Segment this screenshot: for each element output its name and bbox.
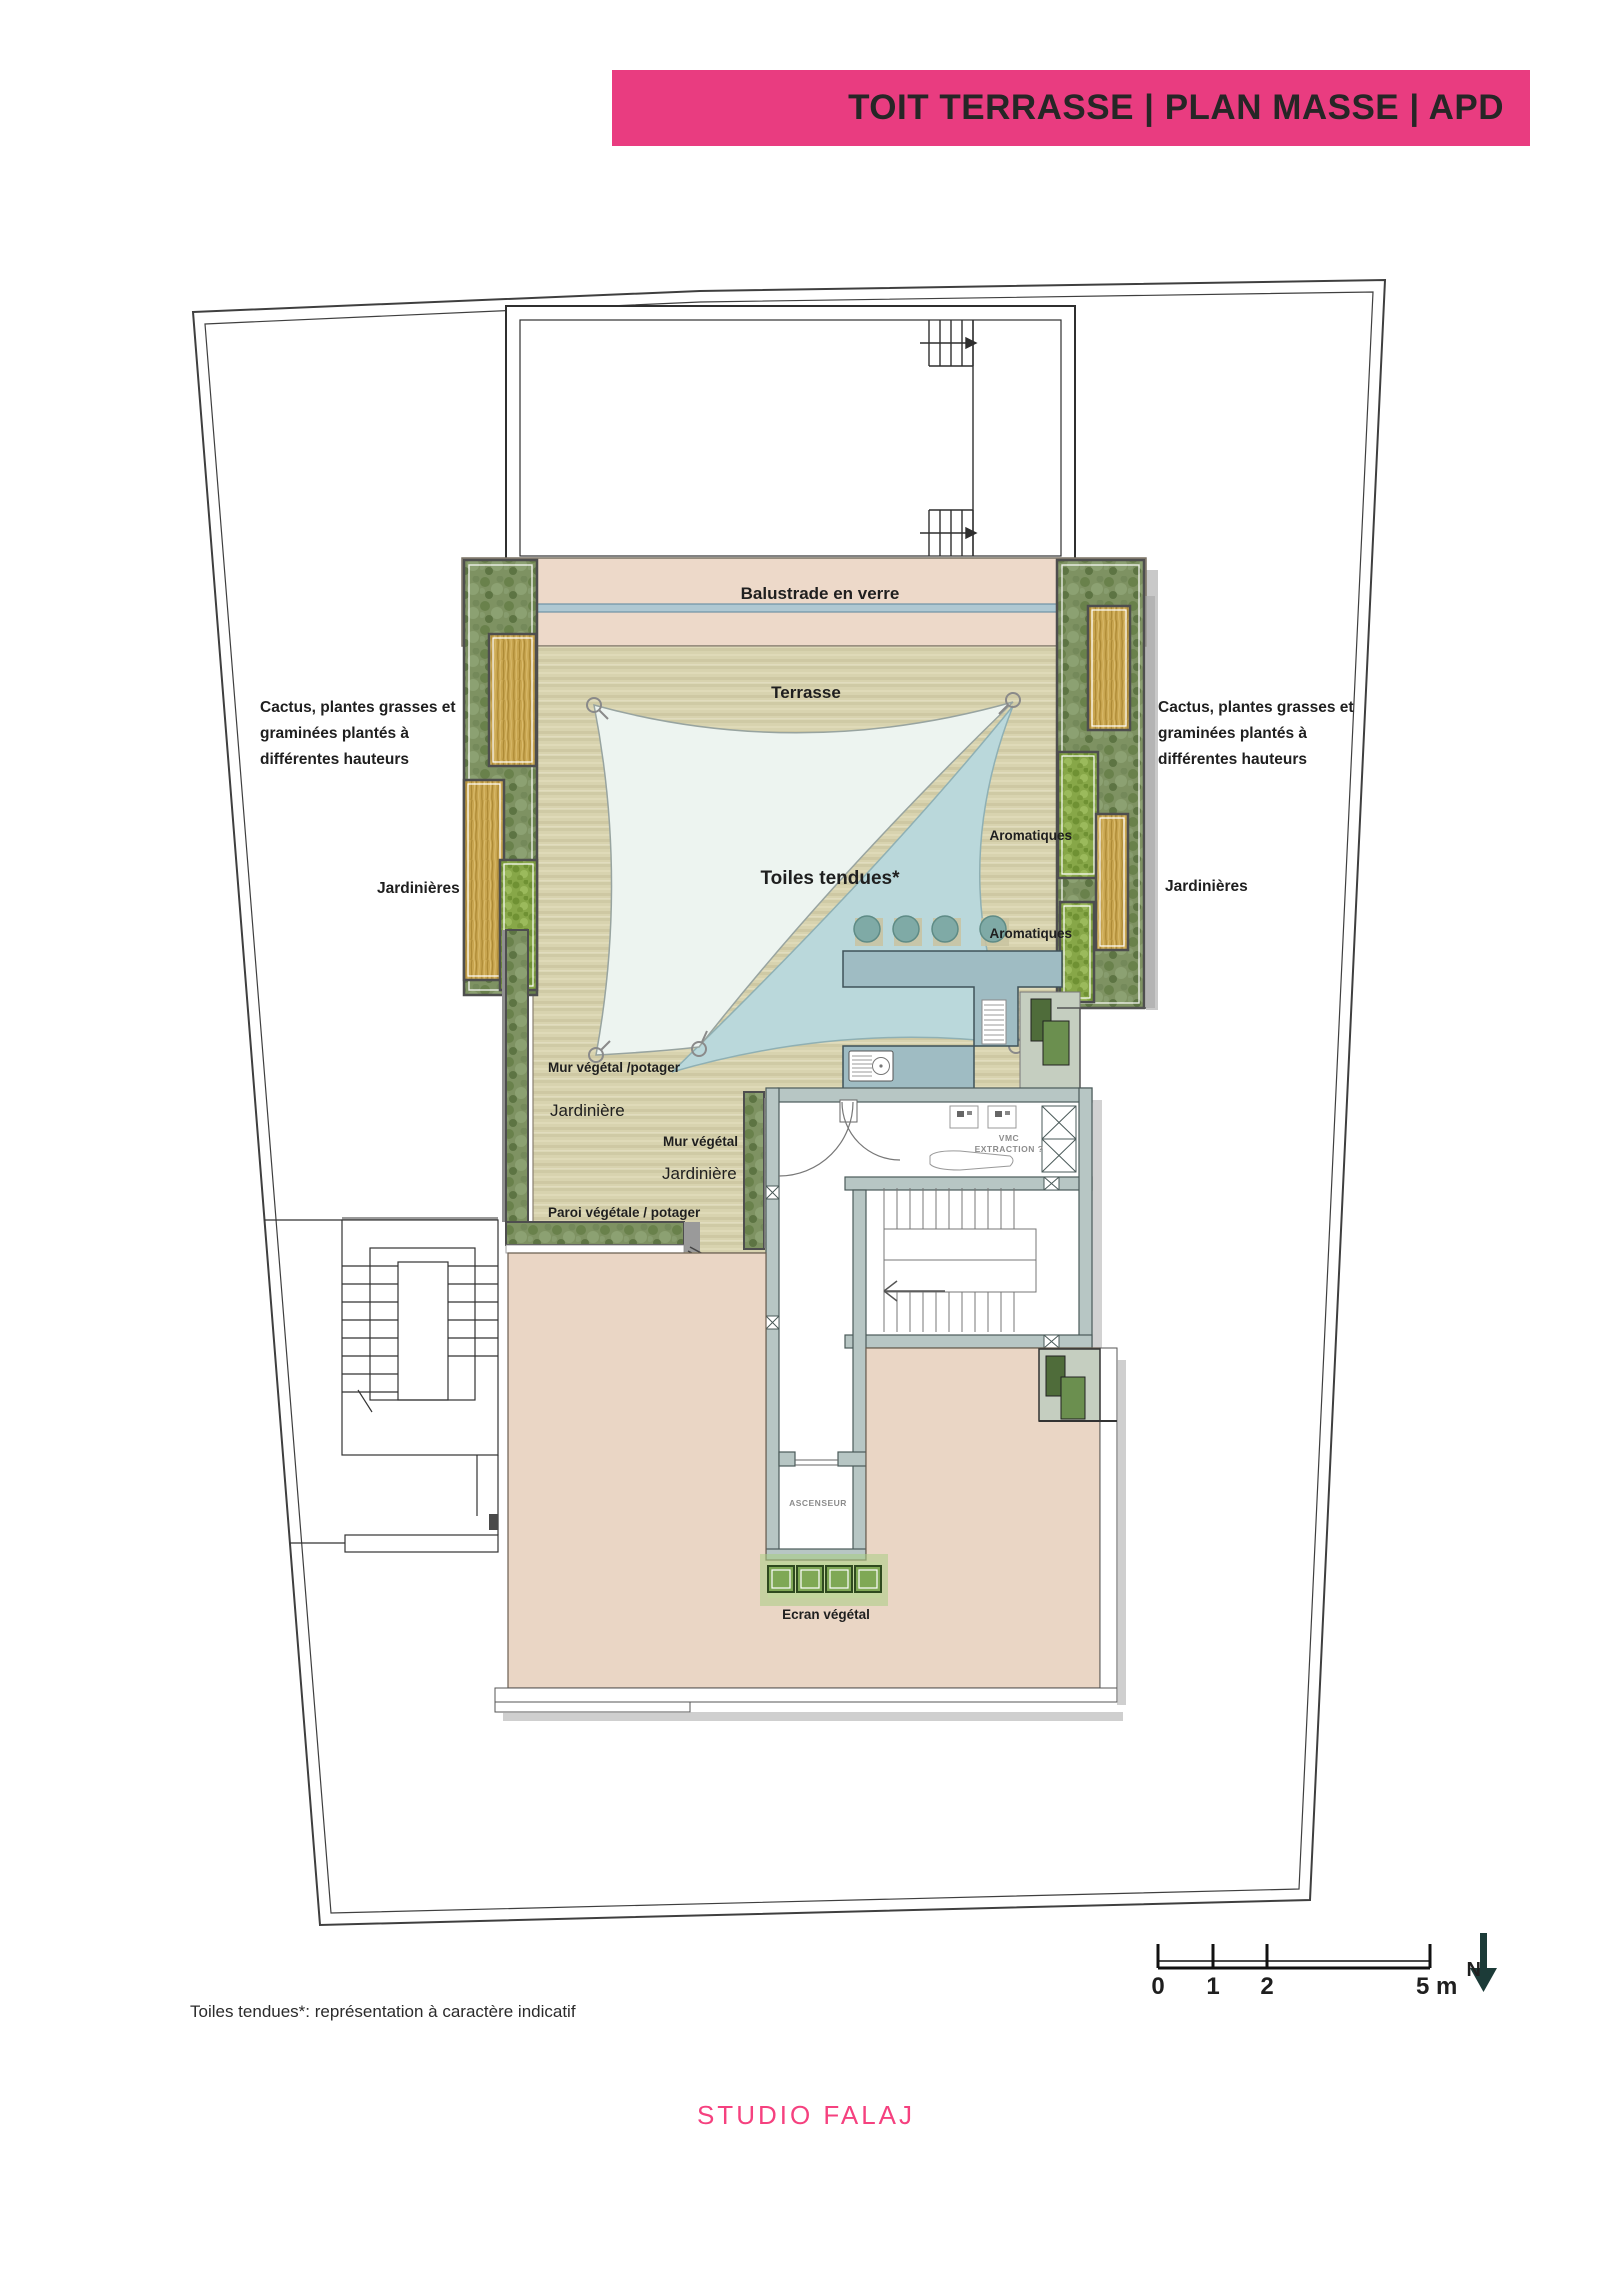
label-line: différentes hauteurs	[1158, 751, 1307, 768]
label-line: Cactus, plantes grasses et	[1158, 699, 1354, 716]
label-paroi-vegetale: Paroi végétale / potager	[548, 1205, 701, 1220]
label-ecran-vegetal: Ecran végétal	[782, 1607, 870, 1622]
label-toiles: Toiles tendues*	[760, 868, 900, 889]
label-jardiniere-a: Jardinière	[550, 1101, 625, 1120]
label-ascenseur: ASCENSEUR	[789, 1498, 847, 1508]
footnote: Toiles tendues*: représentation à caract…	[190, 2002, 576, 2022]
parapet-step	[495, 1702, 690, 1712]
label-jardinieres-left: Jardinières	[377, 880, 460, 897]
label-vmc-1: VMC	[999, 1133, 1019, 1143]
label-line: graminées plantés à	[260, 725, 409, 742]
label-aromatiques-top: Aromatiques	[989, 828, 1072, 843]
label-line: graminées plantés à	[1158, 725, 1307, 742]
parapet-right	[1100, 1348, 1117, 1702]
scale-1: 1	[1206, 1973, 1219, 2000]
upper-roof-block	[506, 306, 1075, 570]
label-balustrade: Balustrade en verre	[741, 584, 900, 603]
glass-balustrade-line	[537, 604, 1057, 612]
label-mur-vegetal-potager: Mur végétal /potager	[548, 1060, 681, 1075]
studio-signature: STUDIO FALAJ	[0, 2100, 1612, 2131]
label-line: différentes hauteurs	[260, 751, 409, 768]
north-letter: N	[1467, 1959, 1481, 1981]
label-line: Cactus, plantes grasses et	[260, 699, 456, 716]
label-aromatiques-bottom: Aromatiques	[989, 926, 1072, 941]
plan-sheet: TOIT TERRASSE | PLAN MASSE | APD	[0, 0, 1612, 2280]
label-terrasse: Terrasse	[771, 683, 841, 702]
scale-bar: 0 1 2 5 m	[1151, 1944, 1457, 2000]
label-jardinieres-right: Jardinières	[1165, 878, 1248, 895]
label-vmc-2: EXTRACTION ?	[975, 1144, 1044, 1154]
parapet-bottom	[495, 1688, 1117, 1702]
label-mur-vegetal: Mur végétal	[663, 1134, 738, 1149]
louver-grille-icon	[982, 1000, 1006, 1044]
label-jardiniere-b: Jardinière	[662, 1164, 737, 1183]
sink-icon	[849, 1051, 893, 1081]
scale-2: 2	[1260, 1973, 1273, 2000]
scale-5m: 5 m	[1416, 1973, 1457, 2000]
north-arrow-icon: N	[1467, 1933, 1497, 1992]
scale-0: 0	[1151, 1973, 1164, 2000]
site-plan-drawing: Balustrade en verre Terrasse Toiles tend…	[0, 0, 1612, 2280]
ecran-vegetal-planters	[760, 1554, 888, 1606]
